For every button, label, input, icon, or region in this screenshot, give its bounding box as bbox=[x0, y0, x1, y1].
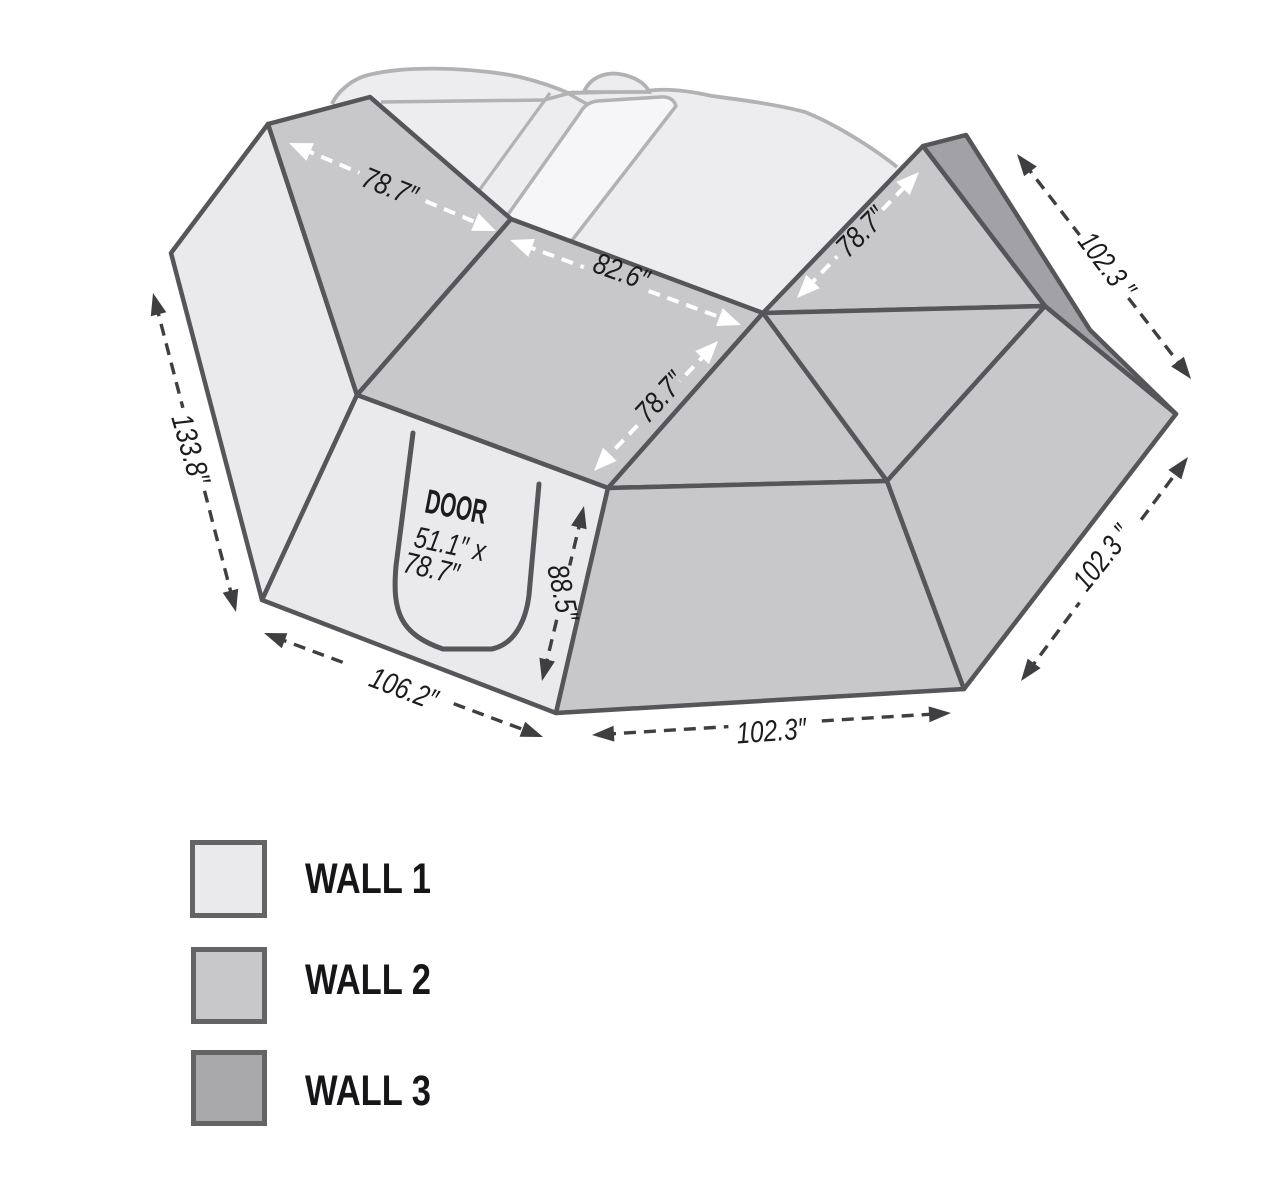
svg-text:WALL 2: WALL 2 bbox=[305, 956, 431, 1004]
svg-text:WALL 1: WALL 1 bbox=[305, 855, 431, 903]
svg-text:102.3″: 102.3″ bbox=[735, 713, 808, 751]
svg-text:WALL 3: WALL 3 bbox=[305, 1067, 431, 1115]
